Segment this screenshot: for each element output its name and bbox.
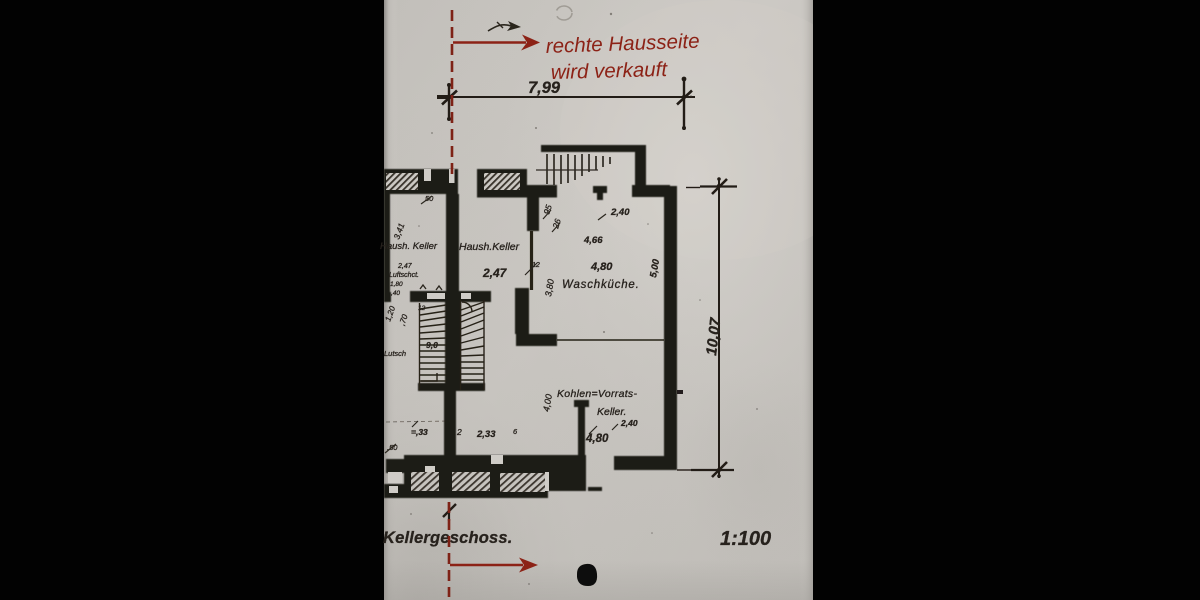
svg-text:4,66: 4,66: [583, 235, 603, 246]
svg-text:2,40: 2,40: [610, 207, 630, 218]
svg-text:Luftschct.: Luftschct.: [389, 272, 419, 279]
svg-text:wird verkauft: wird verkauft: [551, 58, 669, 84]
svg-text:1,80: 1,80: [390, 281, 403, 288]
svg-text:50: 50: [425, 194, 434, 203]
svg-text:Waschküche.: Waschküche.: [562, 279, 640, 291]
svg-text:1:100: 1:100: [720, 528, 771, 550]
svg-text:Haush. Keller: Haush. Keller: [380, 241, 438, 252]
svg-text:Lutsch: Lutsch: [384, 349, 406, 358]
svg-text:Kohlen=Vorrats-: Kohlen=Vorrats-: [557, 388, 637, 400]
svg-text:2,33: 2,33: [476, 429, 496, 440]
svg-text:9,0: 9,0: [426, 340, 438, 350]
svg-text:2,40: 2,40: [620, 418, 638, 428]
svg-text:12: 12: [532, 262, 540, 269]
svg-text:=,33: =,33: [411, 427, 428, 437]
svg-text:Haush.Keller: Haush.Keller: [459, 241, 520, 253]
svg-text:12: 12: [418, 305, 426, 312]
svg-text:2,47: 2,47: [397, 263, 413, 270]
svg-text:2,47: 2,47: [482, 266, 508, 280]
svg-text:4,80: 4,80: [585, 433, 609, 445]
svg-text:,40: ,40: [391, 290, 400, 297]
svg-text:4,80: 4,80: [590, 261, 613, 273]
svg-text:2: 2: [456, 427, 462, 437]
svg-text:Keller.: Keller.: [597, 406, 626, 418]
